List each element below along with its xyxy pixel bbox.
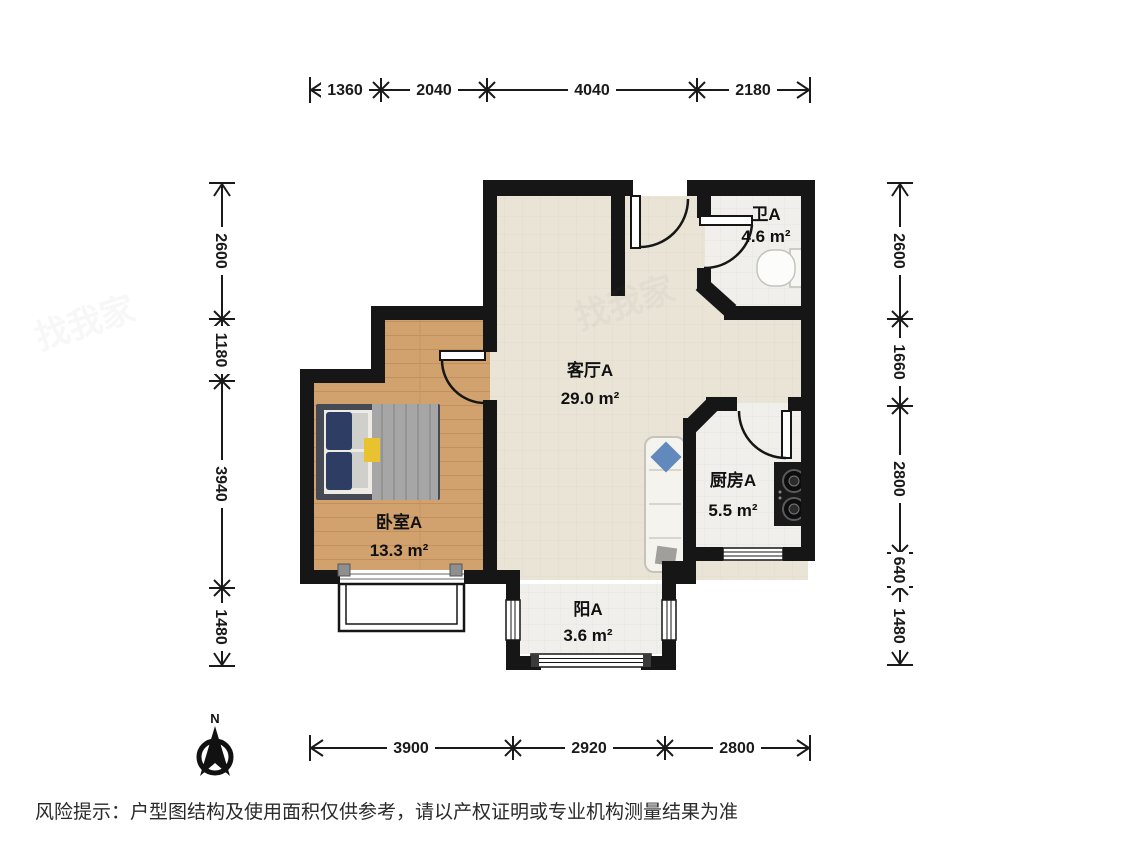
bay-window xyxy=(338,564,464,631)
balcony-label: 阳A xyxy=(573,600,602,619)
kitchen-area: 5.5 m² xyxy=(708,501,757,520)
living-area: 29.0 m² xyxy=(561,389,620,408)
toilet-icon xyxy=(757,249,803,287)
dim-bottom-3: 2800 xyxy=(719,740,755,757)
kitchen-window xyxy=(723,548,783,560)
kitchen-label: 厨房A xyxy=(710,470,756,490)
balcony-area: 3.6 m² xyxy=(563,626,612,645)
dimension-top: 1360 2040 4040 2180 xyxy=(310,77,810,103)
dim-top-3: 4040 xyxy=(574,82,610,99)
living-label: 客厅A xyxy=(566,360,613,380)
risk-disclaimer-text: 风险提示：户型图结构及使用面积仅供参考，请以产权证明或专业机构测量结果为准 xyxy=(35,801,738,823)
dim-right-4: 640 xyxy=(890,557,907,584)
bedroom-area: 13.3 m² xyxy=(370,541,429,560)
dim-top-1: 1360 xyxy=(327,82,363,99)
compass: N xyxy=(199,711,231,776)
bathroom-area: 4.6 m² xyxy=(741,227,790,246)
north-arrow-icon xyxy=(200,726,230,776)
bathroom-label: 卫A xyxy=(751,205,780,224)
dim-right-2: 1660 xyxy=(890,344,907,380)
dim-left-2: 1180 xyxy=(212,333,229,368)
dimension-bottom: 3900 2920 2800 xyxy=(310,735,810,761)
dimension-left: 2600 1180 3940 1480 xyxy=(209,183,235,666)
dim-top-4: 2180 xyxy=(735,82,771,99)
dim-left-4: 1480 xyxy=(212,609,229,645)
floorplan-canvas: 卫A 4.6 m² 客厅A 29.0 m² 厨房A 5.5 m² 卧室A 13.… xyxy=(0,0,1125,844)
floorplan-page: 卫A 4.6 m² 客厅A 29.0 m² 厨房A 5.5 m² 卧室A 13.… xyxy=(0,0,1125,844)
dimension-right: 2600 1660 2800 640 1480 xyxy=(887,183,913,665)
dim-right-1: 2600 xyxy=(890,233,907,269)
dim-top-2: 2040 xyxy=(416,82,452,99)
dim-left-1: 2600 xyxy=(212,233,229,269)
compass-north-label: N xyxy=(210,711,219,726)
sofa-icon xyxy=(645,437,685,572)
dim-right-5: 1480 xyxy=(890,608,907,644)
bed-icon xyxy=(316,404,440,500)
dim-bottom-2: 2920 xyxy=(571,740,607,757)
dim-right-3: 2800 xyxy=(890,461,907,497)
dim-bottom-1: 3900 xyxy=(393,740,429,757)
svg-text:找我家: 找我家 xyxy=(31,290,140,358)
dim-left-3: 3940 xyxy=(212,466,229,502)
bedroom-label: 卧室A xyxy=(376,512,422,532)
